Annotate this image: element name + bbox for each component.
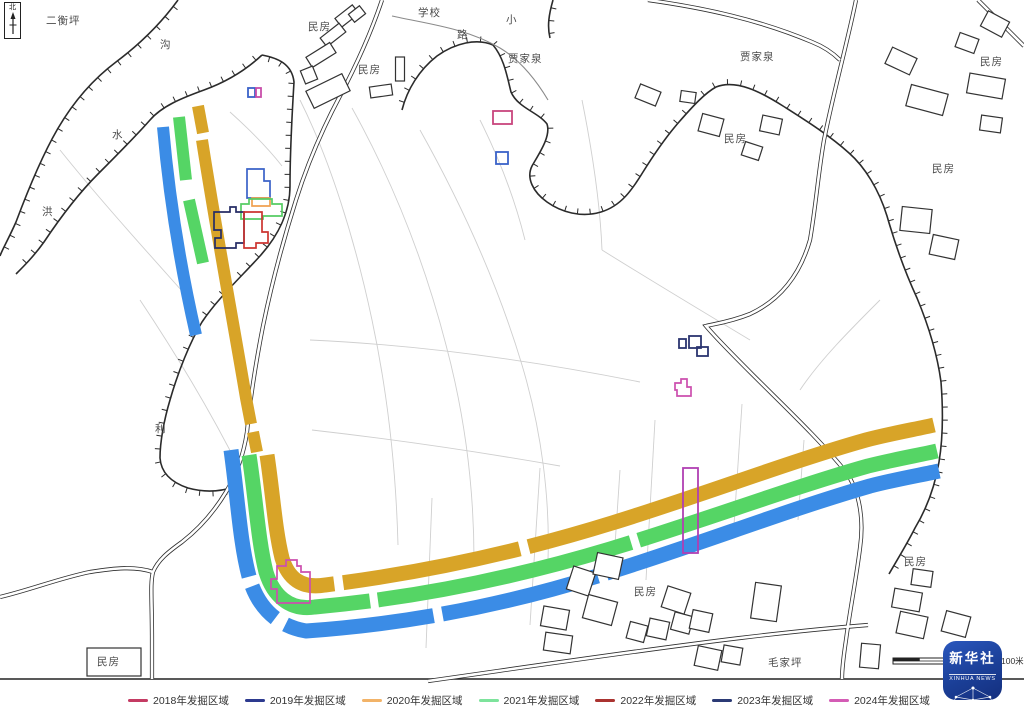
terrain-hatch-tick [621, 193, 625, 197]
terrain-hatch-tick [867, 171, 872, 174]
terrain-hatch-tick [939, 367, 944, 368]
building [646, 618, 669, 640]
terrain-hatch-tick [657, 141, 661, 144]
map-label: 民房 [358, 63, 381, 76]
building [689, 610, 713, 633]
trench-green-b [189, 200, 203, 263]
terrain-hatch-tick [58, 129, 63, 132]
area-outline-navy-1 [679, 339, 686, 348]
terrain-hatch-tick [46, 152, 51, 154]
building [661, 586, 691, 614]
terrain-hatch-tick [35, 175, 40, 177]
terrain-hatch-tick [52, 140, 57, 143]
field-boundary-line [602, 250, 750, 340]
legend-swatch [479, 699, 499, 702]
terrain-hatch-tick [534, 185, 539, 188]
terrain-hatch-tick [30, 187, 35, 189]
area-outline-2019 [247, 169, 270, 198]
building [929, 235, 959, 260]
xinhua-logo-en-text: XINHUA NEWS [949, 674, 996, 683]
terrain-hatch-tick [894, 566, 899, 569]
terrain-hatch-tick [541, 114, 544, 118]
legend-swatch [128, 699, 148, 702]
terrain-hatch-tick [283, 199, 288, 200]
building [582, 595, 617, 626]
terrain-hatch-tick [776, 97, 779, 102]
scale-bar-label: 100米 [1001, 655, 1024, 667]
terrain-hatch-tick [263, 244, 267, 247]
terrain-hatch-tick [907, 543, 912, 546]
terrain-hatch-tick [186, 488, 188, 493]
terrain-hatch-tick [118, 61, 121, 65]
area-outline-2022 [244, 212, 268, 248]
terrain-hatch-tick [210, 82, 212, 87]
terrain-hatch-tick [89, 87, 93, 91]
legend-label: 2018年发掘区域 [153, 693, 229, 708]
terrain-hatch-tick [840, 141, 843, 145]
terrain-hatch-tick [252, 56, 256, 60]
terrain-hatch-tick [80, 97, 84, 100]
terrain-hatch-tick [896, 244, 901, 246]
building [885, 47, 917, 75]
terrain-hatch-tick [919, 520, 924, 523]
terrain-hatch-tick [440, 47, 443, 52]
building [967, 73, 1006, 99]
terrain-hatch-tick [211, 301, 215, 304]
terrain-hatch-tick [830, 133, 833, 137]
terrain-hatch-tick [165, 397, 170, 399]
terrain-hatch-tick [910, 280, 915, 282]
map-label: 民房 [932, 162, 955, 175]
terrain-hatch-tick [913, 532, 918, 535]
terrain-hatch-tick [712, 83, 715, 88]
field-boundary-line [352, 108, 474, 560]
terrain-hatch-tick [519, 99, 523, 103]
terrain-hatch-tick [199, 490, 200, 495]
terrain-hatch-tick [268, 57, 270, 62]
terrain-hatch-tick [859, 160, 863, 164]
terrain-hatch-tick [54, 219, 58, 222]
legend-label: 2022年发掘区域 [620, 693, 696, 708]
terrain-edge-line [0, 0, 178, 256]
field-boundary-line [420, 130, 548, 560]
terrain-hatch-tick [128, 53, 131, 57]
terrain-hatch-tick [765, 90, 768, 95]
legend-label: 2021年发掘区域 [504, 693, 580, 708]
building [892, 588, 923, 612]
terrain-hatch-tick [105, 159, 109, 163]
map-canvas: 二衡坪沟水洪民房学校小路民房贾家泉贾家泉民房民房民房利民房民房毛家坪民房 [0, 0, 1024, 720]
field-boundary-line [480, 120, 525, 240]
terrain-hatch-tick [185, 91, 187, 96]
terrain-edge-line [549, 0, 553, 38]
field-boundary-line [312, 430, 560, 466]
terrain-hatch-tick [612, 201, 615, 206]
legend-item: 2019年发掘区域 [245, 693, 346, 708]
map-label: 民房 [724, 132, 747, 145]
terrain-hatch-tick [202, 312, 206, 315]
terrain-hatch-tick [4, 247, 9, 249]
terrain-hatch-tick [939, 459, 944, 460]
terrain-hatch-tick [505, 66, 510, 68]
map-label: 民房 [980, 55, 1003, 68]
terrain-hatch-tick [72, 107, 76, 110]
terrain-hatch-tick [787, 104, 790, 109]
legend-swatch [829, 699, 849, 702]
terrain-hatch-tick [820, 125, 823, 130]
terrain-hatch-tick [901, 256, 906, 258]
terrain-hatch-tick [650, 152, 655, 155]
terrain-hatch-tick [141, 122, 145, 126]
terrain-hatch-tick [628, 184, 632, 187]
terrain-edge-line [16, 55, 262, 274]
terrain-hatch-tick [69, 198, 73, 201]
terrain-hatch-tick [915, 292, 920, 294]
map-label: 贾家泉 [740, 50, 775, 63]
legend-item: 2018年发掘区域 [128, 693, 229, 708]
terrain-hatch-tick [198, 86, 200, 91]
terrain-hatch-tick [642, 163, 647, 166]
terrain-hatch-tick [542, 194, 546, 198]
terrain-hatch-tick [540, 153, 545, 156]
terrain-hatch-tick [150, 112, 154, 116]
north-arrow: 北 [4, 2, 21, 39]
terrain-hatch-tick [221, 77, 223, 82]
terrain-hatch-tick [933, 342, 938, 343]
terrain-hatch-tick [155, 462, 160, 463]
terrain-hatch-tick [941, 446, 946, 447]
terrain-hatch-tick [508, 79, 513, 80]
legend-item: 2022年发掘区域 [595, 693, 696, 708]
terrain-hatch-tick [246, 263, 250, 267]
map-label: 学校 [418, 6, 441, 19]
area-outline-crimson [493, 111, 512, 124]
building [900, 206, 932, 233]
building [300, 66, 317, 84]
map-label: 民房 [308, 20, 331, 33]
terrain-hatch-tick [276, 223, 281, 225]
terrain-hatch-tick [243, 64, 246, 68]
terrain-hatch-tick [551, 8, 556, 9]
terrain-hatch-tick [577, 208, 578, 213]
legend-swatch [712, 699, 732, 702]
terrain-hatch-tick [809, 118, 812, 123]
building [306, 42, 336, 67]
xinhua-logo: 新华社 XINHUA NEWS [943, 641, 1002, 700]
area-outline-2024-small [675, 379, 691, 396]
terrain-hatch-tick [665, 130, 669, 133]
terrain-hatch-tick [237, 272, 241, 276]
road-surface [706, 0, 861, 679]
building [760, 115, 783, 135]
road-casing [706, 0, 861, 679]
building [694, 646, 722, 671]
terrain-hatch-tick [161, 474, 165, 477]
xinhua-logo-cn-text: 新华社 [943, 647, 1002, 667]
terrain-hatch-tick [674, 120, 678, 124]
terrain-hatch-tick [565, 206, 567, 211]
field-boundary-line [582, 100, 602, 250]
logo-network-icon [948, 685, 998, 700]
terrain-hatch-tick [165, 16, 169, 20]
trench-yellow-a [198, 106, 203, 133]
terrain-hatch-tick [173, 482, 176, 487]
building [369, 84, 392, 98]
building [698, 113, 724, 136]
area-outline-blue-small [248, 88, 255, 97]
map-label: 水 [112, 129, 124, 141]
terrain-hatch-tick [10, 235, 15, 237]
terrain-hatch-tick [96, 168, 100, 172]
building [941, 611, 971, 638]
building [721, 645, 743, 665]
terrain-hatch-tick [888, 219, 893, 221]
terrain-hatch-tick [123, 141, 127, 145]
terrain-hatch-tick [46, 229, 51, 232]
map-label: 洪 [42, 206, 54, 218]
legend-label: 2023年发掘区域 [737, 693, 813, 708]
building [543, 632, 572, 654]
terrain-hatch-tick [874, 182, 879, 185]
map-label: 利 [155, 423, 167, 435]
legend-label: 2024年发掘区域 [854, 693, 930, 708]
terrain-hatch-tick [138, 44, 142, 48]
building [896, 611, 928, 638]
terrain-hatch-tick [183, 347, 188, 349]
terrain-hatch-tick [601, 206, 603, 211]
legend-swatch [595, 699, 615, 702]
terrain-hatch-tick [929, 329, 934, 331]
terrain-hatch-tick [753, 85, 755, 90]
building [751, 582, 782, 621]
terrain-hatch-tick [404, 88, 409, 90]
terrain-hatch-tick [553, 201, 556, 206]
news-map-page: { "north_label": "北", "scale_label": "10… [0, 0, 1024, 720]
terrain-hatch-tick [545, 141, 550, 143]
terrain-hatch-tick [87, 178, 91, 182]
building [540, 606, 569, 630]
building [980, 11, 1009, 37]
terrain-hatch-tick [173, 6, 177, 9]
building [396, 57, 405, 81]
field-boundary-line [300, 100, 398, 545]
terrain-hatch-tick [934, 484, 939, 486]
north-label: 北 [5, 4, 20, 12]
terrain-hatch-tick [15, 223, 20, 225]
terrain-hatch-tick [892, 232, 897, 234]
building [635, 84, 661, 106]
field-boundary-line [310, 340, 640, 382]
terrain-hatch-tick [533, 164, 538, 167]
terrain-hatch-tick [636, 174, 641, 177]
terrain-hatch-tick [453, 41, 455, 46]
terrain-hatch-tick [480, 36, 481, 41]
terrain-hatch-tick [549, 33, 554, 34]
map-label: 沟 [160, 38, 172, 51]
terrain-hatch-tick [500, 53, 505, 55]
terrain-hatch-tick [590, 209, 591, 214]
terrain-hatch-tick [23, 259, 27, 263]
map-label: 小 [506, 14, 518, 26]
terrain-hatch-tick [161, 103, 164, 108]
trench-yellow-c [253, 432, 257, 452]
trench-green-a [179, 117, 186, 180]
map-legend: 2018年发掘区域2019年发掘区域2020年发掘区域2021年发掘区域2022… [128, 693, 930, 708]
terrain-hatch-tick [162, 409, 167, 410]
legend-swatch [362, 699, 382, 702]
terrain-hatch-tick [173, 97, 175, 102]
terrain-hatch-tick [147, 35, 151, 39]
trench-yellow-b [202, 140, 251, 424]
field-boundary-line [800, 300, 880, 390]
terrain-hatch-tick [530, 106, 533, 111]
terrain-hatch-tick [920, 304, 925, 306]
terrain-hatch-tick [255, 253, 259, 257]
map-label: 民房 [634, 585, 657, 598]
legend-item: 2020年发掘区域 [362, 693, 463, 708]
terrain-hatch-tick [232, 71, 235, 76]
terrain-hatch-tick [78, 188, 82, 192]
legend-label: 2020年发掘区域 [387, 693, 463, 708]
legend-swatch [245, 699, 265, 702]
terrain-hatch-tick [98, 78, 102, 82]
map-label: 贾家泉 [508, 52, 543, 65]
terrain-hatch-tick [279, 62, 282, 67]
field-boundary-line [230, 112, 282, 166]
map-label: 民房 [97, 655, 120, 668]
terrain-hatch-tick [936, 354, 941, 355]
scale-bar-segment [893, 658, 920, 661]
map-label: 路 [457, 28, 469, 41]
terrain-hatch-tick [880, 194, 885, 196]
north-arrow-icon [7, 12, 19, 36]
terrain-hatch-tick [173, 372, 178, 374]
terrain-hatch-tick [25, 199, 30, 201]
terrain-hatch-tick [20, 211, 25, 213]
map-label: 二衡坪 [46, 14, 81, 27]
legend-item: 2023年发掘区域 [712, 693, 813, 708]
terrain-hatch-tick [798, 111, 801, 116]
terrain-hatch-tick [701, 91, 705, 95]
legend-item: 2021年发掘区域 [479, 693, 580, 708]
building [980, 115, 1003, 133]
area-outline-magenta-small [256, 88, 261, 97]
map-label: 民房 [904, 555, 927, 568]
terrain-hatch-tick [132, 131, 136, 135]
terrain-hatch-tick [39, 240, 43, 243]
terrain-hatch-tick [411, 76, 416, 79]
terrain-hatch-tick [169, 384, 174, 386]
terrain-hatch-tick [65, 118, 70, 121]
terrain-hatch-tick [419, 65, 423, 69]
terrain-hatch-tick [682, 110, 686, 114]
map-label: 毛家坪 [768, 656, 803, 669]
terrain-hatch-tick [885, 207, 890, 209]
building [626, 621, 648, 642]
terrain-hatch-tick [925, 509, 930, 511]
terrain-hatch-tick [905, 268, 910, 270]
terrain-hatch-tick [941, 380, 946, 381]
terrain-hatch-tick [40, 163, 45, 165]
terrain-hatch-tick [850, 150, 854, 154]
terrain-hatch-tick [740, 81, 741, 86]
terrain-hatch-tick [270, 234, 275, 237]
terrain-hatch-tick [429, 55, 433, 59]
terrain-hatch-tick [31, 250, 35, 254]
building [955, 33, 979, 54]
terrain-hatch-tick [107, 69, 111, 73]
terrain-hatch-tick [399, 101, 404, 103]
building [906, 84, 948, 115]
terrain-hatch-tick [925, 316, 930, 318]
terrain-hatch-tick [61, 208, 65, 211]
terrain-hatch-tick [930, 497, 935, 499]
legend-item: 2024年发掘区域 [829, 693, 930, 708]
terrain-hatch-tick [286, 71, 291, 74]
building [680, 91, 696, 104]
building [911, 569, 933, 588]
terrain-hatch-tick [511, 90, 516, 93]
road-casing [0, 568, 153, 597]
building [859, 643, 880, 669]
terrain-hatch-tick [114, 150, 118, 154]
building [593, 553, 623, 580]
terrain-hatch-tick [156, 26, 160, 30]
legend-label: 2019年发掘区域 [270, 693, 346, 708]
